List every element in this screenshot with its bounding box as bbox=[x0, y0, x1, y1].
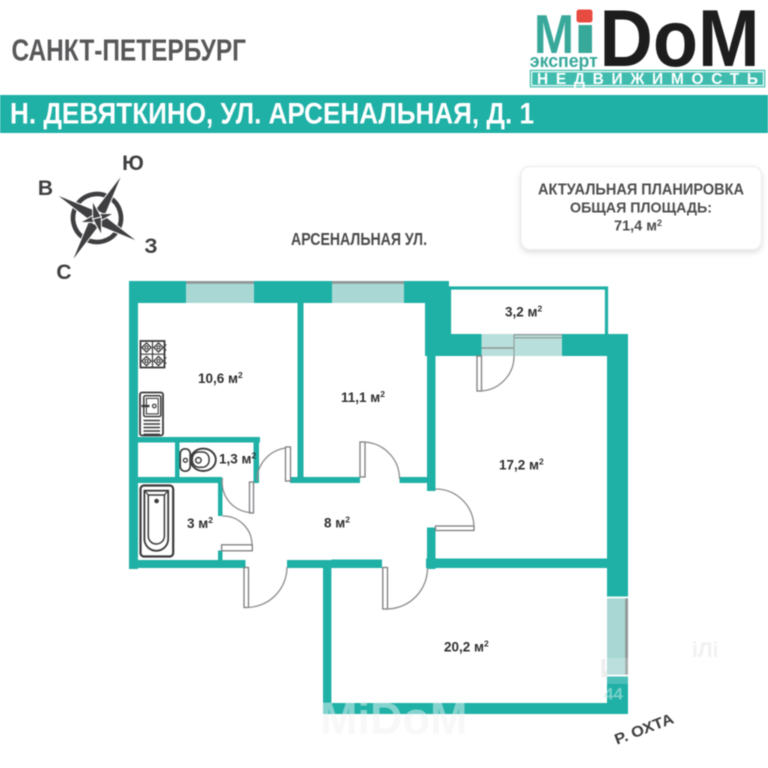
svg-text:С: С bbox=[56, 261, 71, 284]
svg-text:1,3 м2: 1,3 м2 bbox=[219, 451, 257, 467]
svg-text:АКТУАЛЬНАЯ ПЛАНИРОВКА: АКТУАЛЬНАЯ ПЛАНИРОВКА bbox=[538, 182, 744, 199]
svg-text:З: З bbox=[144, 235, 157, 258]
svg-text:Ю: Ю bbox=[122, 152, 144, 175]
svg-text:10,6 м2: 10,6 м2 bbox=[198, 370, 243, 386]
svg-text:11,1 м2: 11,1 м2 bbox=[341, 389, 385, 405]
svg-text:20,2 м2: 20,2 м2 bbox=[444, 639, 489, 655]
svg-text:71,4 м2: 71,4 м2 bbox=[614, 218, 662, 235]
svg-text:44: 44 bbox=[604, 685, 623, 704]
svg-text:ОБЩАЯ ПЛОЩАДЬ:: ОБЩАЯ ПЛОЩАДЬ: bbox=[570, 200, 712, 217]
svg-text:8 м2: 8 м2 bbox=[324, 515, 350, 531]
svg-text:МіDоМ: МіDоМ bbox=[320, 693, 467, 744]
svg-text:іЛі: іЛі bbox=[692, 639, 718, 662]
svg-text:Р. ОХТА: Р. ОХТА bbox=[612, 710, 676, 748]
svg-text:эксперт: эксперт bbox=[530, 50, 598, 71]
svg-text:3 м2: 3 м2 bbox=[187, 515, 213, 531]
svg-text:17,2 м2: 17,2 м2 bbox=[499, 457, 544, 473]
svg-text:Н. ДЕВЯТКИНО, УЛ. АРСЕНАЛЬНАЯ,: Н. ДЕВЯТКИНО, УЛ. АРСЕНАЛЬНАЯ, Д. 1 bbox=[10, 98, 534, 131]
svg-text:АРСЕНАЛЬНАЯ УЛ.: АРСЕНАЛЬНАЯ УЛ. bbox=[291, 229, 427, 249]
svg-text:САНКТ-ПЕТЕРБУРГ: САНКТ-ПЕТЕРБУРГ bbox=[12, 33, 247, 68]
svg-text:В: В bbox=[38, 177, 53, 200]
svg-text:3,2 м2: 3,2 м2 bbox=[505, 304, 543, 320]
